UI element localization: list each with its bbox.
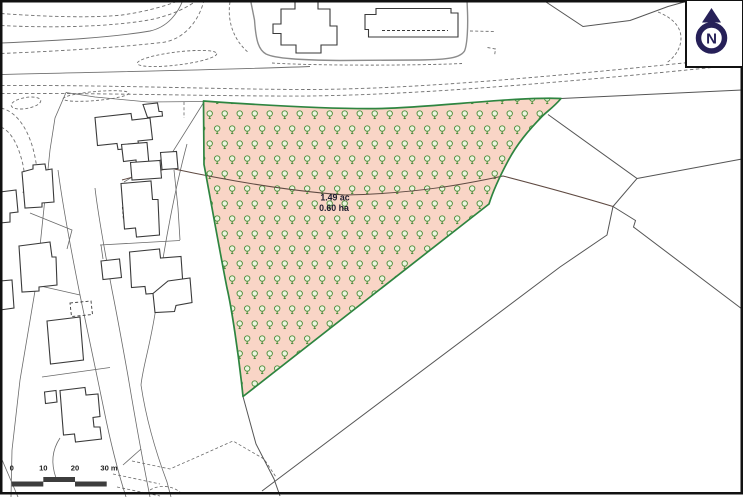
outbuilding-dashed — [70, 301, 93, 317]
parcel-line — [174, 170, 180, 240]
scale-tick-0: 0 — [10, 464, 14, 473]
north-letter: N — [706, 31, 717, 48]
scale-tick-30m: 30 m — [100, 464, 118, 473]
parcel-line — [11, 93, 66, 497]
scale-segment — [43, 477, 75, 482]
field-line — [613, 207, 742, 310]
scale-segment — [75, 482, 107, 487]
parcel-line-dashed — [117, 487, 160, 496]
building — [22, 164, 54, 208]
parcel-line — [53, 438, 60, 478]
building — [101, 259, 122, 280]
kerb-dashed — [488, 48, 496, 57]
scale-bar: 0 10 20 30 m — [10, 464, 118, 487]
building — [121, 181, 160, 237]
traffic-island — [137, 47, 218, 70]
building — [365, 9, 458, 38]
site-area-label: 1.49 ac 0.60 ha — [319, 193, 350, 214]
road-edge-dashed — [1, 0, 180, 17]
field-line — [543, 0, 686, 27]
kerb-dashed — [658, 12, 681, 63]
building — [273, 2, 337, 53]
parcel-line — [100, 241, 180, 246]
road-edge-solid — [1, 67, 310, 75]
traffic-island — [10, 95, 41, 111]
kerb-dashed — [470, 31, 495, 32]
building — [45, 391, 58, 404]
parcel-line — [42, 368, 110, 378]
map-canvas: 1.49 ac 0.60 ha N — [0, 0, 743, 497]
building — [143, 103, 163, 118]
parcel-line-dashed — [132, 441, 276, 477]
scale-tick-20: 20 — [71, 464, 79, 473]
building — [161, 152, 179, 170]
building — [131, 161, 162, 181]
site-area-acres: 1.49 ac — [320, 193, 349, 203]
kerb-dashed — [229, 2, 249, 53]
scale-segment — [12, 482, 44, 487]
road-edge-dashed — [1, 65, 742, 97]
field-line — [243, 397, 280, 497]
site-tree-fill — [204, 98, 562, 396]
site-layer: 1.49 ac 0.60 ha — [122, 98, 613, 396]
building — [19, 242, 57, 292]
scale-tick-10: 10 — [39, 464, 47, 473]
building — [60, 388, 102, 443]
field-line — [548, 115, 637, 207]
building — [0, 190, 18, 223]
site-area-hectares: 0.60 ha — [319, 203, 349, 213]
map-viewport: 1.49 ac 0.60 ha N — [0, 0, 743, 497]
field-line — [637, 159, 742, 179]
parcel-line-dashed — [113, 474, 160, 484]
field-line — [561, 90, 742, 99]
side-street-dashed — [1, 127, 25, 193]
parcel-line — [101, 245, 103, 259]
road-edge-dashed — [1, 57, 742, 90]
north-arrow-box: N — [686, 0, 743, 67]
building — [47, 317, 84, 364]
traffic-island — [63, 89, 130, 104]
kerb-dashed — [272, 63, 462, 65]
road-edge-solid — [1, 0, 183, 43]
parcel-line — [0, 455, 18, 497]
parcel-line-dashed — [150, 486, 180, 492]
